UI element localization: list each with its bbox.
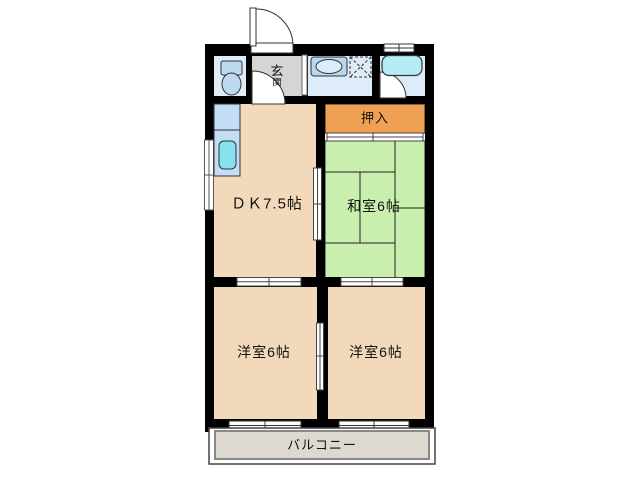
wall-washroom-bathroom	[372, 44, 380, 104]
vanity-sink-icon	[311, 57, 347, 76]
window-left-kitchen	[205, 140, 214, 210]
sliding-door-washitsu-yoshitsu-right	[341, 278, 403, 287]
sliding-door-dk-yoshitsu-left	[237, 278, 301, 287]
yoshitsu-right-label: 洋室6帖	[349, 345, 403, 359]
kitchen-sink-icon	[219, 141, 236, 169]
bathtub-icon	[382, 56, 422, 76]
floorplan-canvas: 玄 関 押入 ＤＫ7.5帖 和室6帖 洋室6帖 洋室6帖 バルコニー	[0, 0, 640, 480]
sliding-door-dk-washitsu	[314, 168, 322, 240]
genkan-label: 玄 関	[270, 65, 283, 88]
entrance-door-swing-arc-icon	[256, 9, 293, 46]
floorplan-drawing	[0, 0, 640, 480]
sliding-door-oshiire	[327, 133, 423, 141]
balcony-label: バルコニー	[287, 439, 357, 452]
entrance-door-leaf	[250, 8, 256, 46]
window-bathroom-top	[384, 44, 414, 52]
sliding-door-between-yoshitsu	[317, 323, 324, 390]
yoshitsu-left-label: 洋室6帖	[237, 345, 291, 359]
door-genkan-washroom	[302, 55, 307, 95]
oshiire-label: 押入	[361, 112, 389, 125]
genkan-label-main: 玄	[270, 64, 283, 79]
kitchen-counter	[214, 104, 240, 176]
washitsu-label: 和室6帖	[347, 199, 401, 213]
dk-label: ＤＫ7.5帖	[231, 197, 303, 212]
genkan-label-sub: 関	[270, 79, 283, 88]
entrance-door	[250, 8, 293, 53]
entrance-door-sill	[251, 43, 293, 53]
toilet-icon	[221, 61, 242, 95]
